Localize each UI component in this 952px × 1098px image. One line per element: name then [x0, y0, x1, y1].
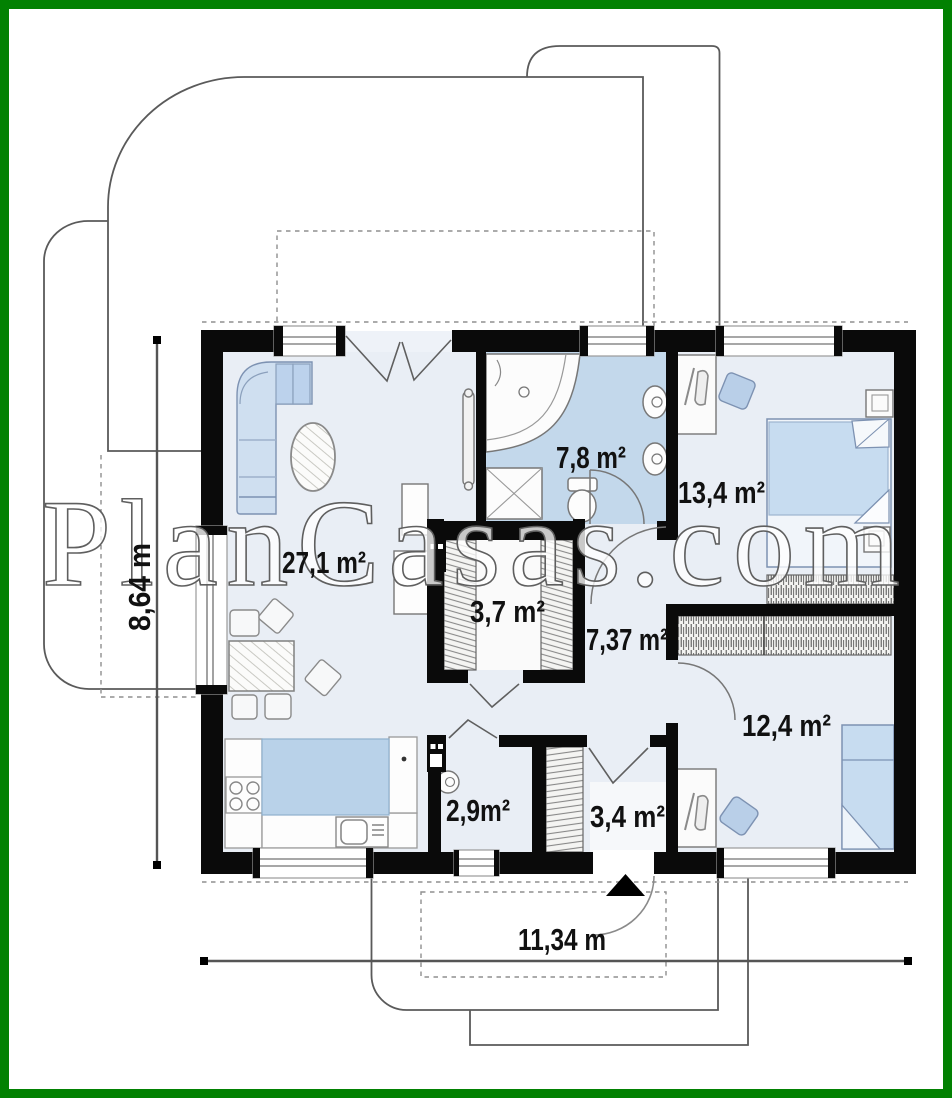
svg-text:11,34 m: 11,34 m: [518, 922, 606, 957]
svg-text:7,37 m²: 7,37 m²: [586, 622, 668, 657]
svg-text:27,1 m²: 27,1 m²: [282, 545, 366, 580]
svg-text:2,9m²: 2,9m²: [446, 793, 510, 828]
svg-text:13,4 m²: 13,4 m²: [678, 475, 765, 510]
svg-text:8,64 m: 8,64 m: [122, 543, 157, 631]
svg-text:PlanCasas.com: PlanCasas.com: [42, 475, 900, 612]
svg-text:3,7 m²: 3,7 m²: [470, 594, 545, 629]
svg-text:7,8 m²: 7,8 m²: [556, 440, 626, 475]
svg-text:3,4 m²: 3,4 m²: [590, 799, 665, 834]
svg-text:12,4 m²: 12,4 m²: [742, 708, 831, 743]
